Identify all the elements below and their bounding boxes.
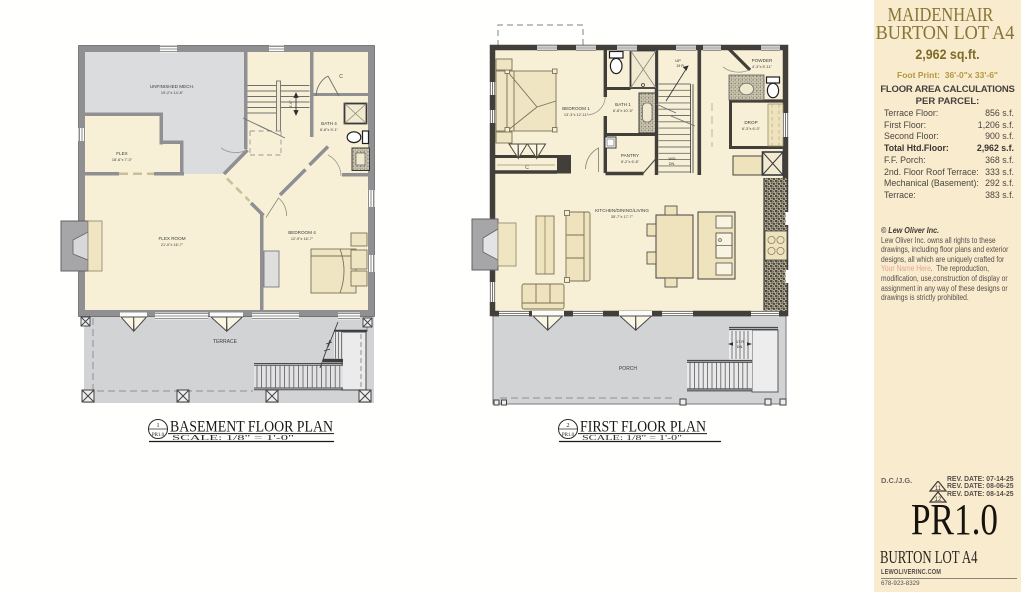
svg-text:SCALE: 1/8" = 1'-0": SCALE: 1/8" = 1'-0": [172, 433, 294, 442]
svg-text:17 R: 17 R: [736, 340, 744, 344]
svg-text:PR1.0: PR1.0: [152, 433, 165, 438]
svg-text:BEDROOM 1: BEDROOM 1: [562, 106, 590, 111]
svg-text:DN.: DN.: [669, 162, 675, 166]
svg-text:11: 11: [935, 486, 942, 492]
svg-text:FLEX: FLEX: [116, 151, 128, 156]
svg-text:C: C: [339, 74, 343, 80]
svg-text:4'-3"x 5'-11": 4'-3"x 5'-11": [752, 65, 773, 69]
svg-text:PR1.0: PR1.0: [562, 433, 575, 438]
svg-text:6'-8"x 10'-5": 6'-8"x 10'-5": [613, 109, 634, 113]
svg-text:TERRACE: TERRACE: [213, 339, 238, 345]
svg-text:BEDROOM 4: BEDROOM 4: [288, 230, 316, 235]
svg-text:18'-6"x 7'-0": 18'-6"x 7'-0": [112, 158, 133, 162]
svg-text:KITCHEN/DINING/LIVING: KITCHEN/DINING/LIVING: [595, 208, 649, 213]
svg-text:1: 1: [157, 423, 160, 429]
svg-text:6'-8"x 9'-1": 6'-8"x 9'-1": [320, 128, 339, 132]
svg-text:POWDER: POWDER: [752, 58, 773, 63]
svg-text:2: 2: [567, 423, 570, 429]
svg-text:W/D: W/D: [669, 157, 676, 161]
svg-text:6'-2"x 6'-6": 6'-2"x 6'-6": [621, 160, 640, 164]
svg-text:PANTRY: PANTRY: [621, 153, 639, 158]
svg-text:12'-9"x 16'-7": 12'-9"x 16'-7": [291, 237, 314, 241]
svg-text:19 R: 19 R: [676, 64, 684, 68]
svg-text:SCALE: 1/8" = 1'-0": SCALE: 1/8" = 1'-0": [582, 433, 682, 442]
svg-text:21'-0"x 16'-7": 21'-0"x 16'-7": [161, 243, 184, 247]
svg-text:PORCH: PORCH: [619, 366, 637, 372]
svg-text:35'-7"x 17'-7": 35'-7"x 17'-7": [611, 215, 634, 219]
svg-text:3'-6": 3'-6": [289, 100, 293, 108]
svg-text:UNFINISHED MECH.: UNFINISHED MECH.: [150, 84, 194, 89]
svg-text:FLEX ROOM: FLEX ROOM: [158, 236, 185, 241]
svg-text:19'-2"x 14'-8": 19'-2"x 14'-8": [161, 91, 184, 95]
svg-text:UP: UP: [675, 58, 681, 63]
svg-text:C: C: [525, 165, 529, 171]
svg-text:6'-3"x 6'-0": 6'-3"x 6'-0": [742, 127, 761, 131]
svg-text:BATH 1: BATH 1: [615, 102, 631, 107]
svg-text:DN.: DN.: [737, 345, 744, 349]
svg-text:BATH 4: BATH 4: [321, 121, 337, 126]
svg-text:DROP: DROP: [744, 120, 757, 125]
svg-text:13'-3"x 12'-11": 13'-3"x 12'-11": [564, 113, 589, 117]
